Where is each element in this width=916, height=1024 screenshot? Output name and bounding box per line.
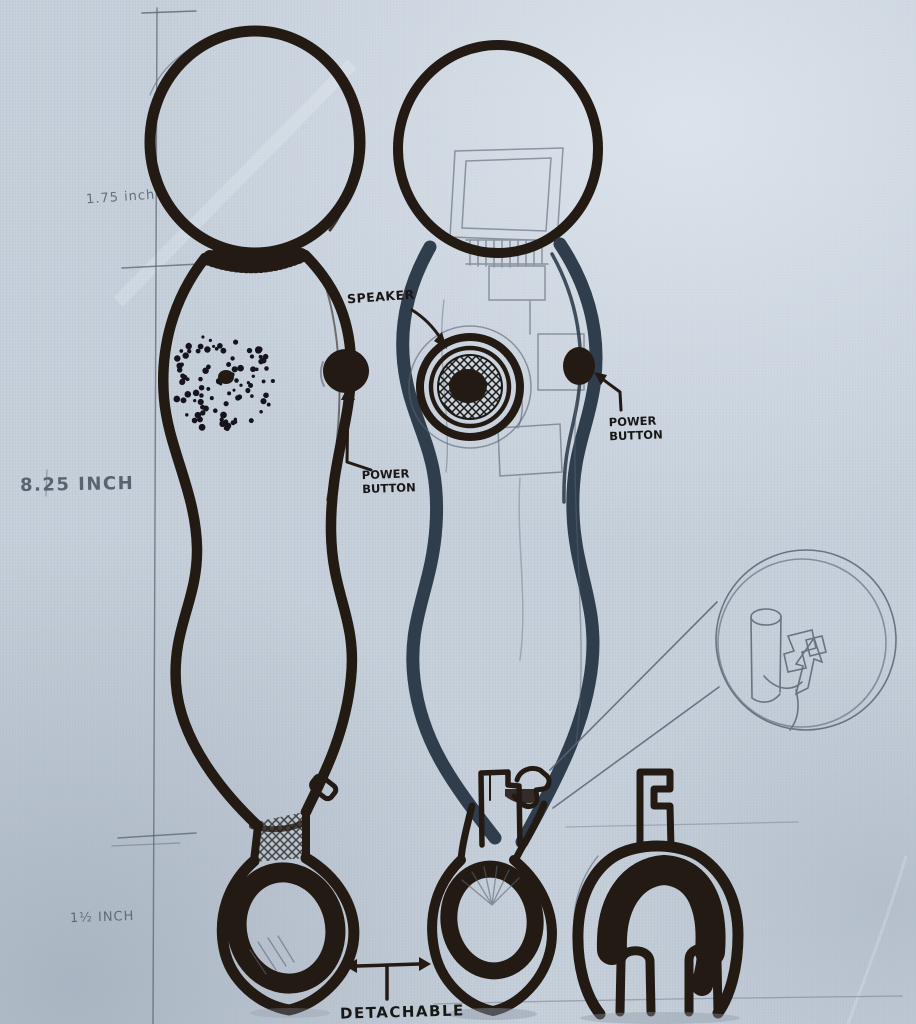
detail-arrow-icon — [796, 638, 822, 694]
side-power-button — [563, 347, 595, 385]
detachable-arrow-icon — [345, 957, 431, 999]
front-view-device — [150, 31, 369, 1010]
side-head-outline — [398, 45, 598, 253]
front-body-left-edge — [163, 258, 258, 826]
detached-clip-post — [640, 772, 671, 848]
side-power-button-label: POWER BUTTON — [609, 413, 682, 444]
clip-detail-sketch — [751, 609, 826, 730]
detail-callout-circle — [550, 550, 896, 808]
detachable-label: DETACHABLE — [340, 1001, 465, 1022]
front-body-right-edge — [305, 255, 352, 812]
front-power-button-label: POWER BUTTON — [362, 466, 427, 497]
sketch-photo: 1.75 inch 8.25 INCH 1½ INCH SPEAKER POWE… — [0, 0, 916, 1024]
sketch-drawing — [0, 0, 916, 1024]
front-head-outline — [150, 31, 360, 253]
front-power-button — [323, 349, 369, 393]
detached-ring-attachment — [574, 772, 740, 1024]
side-speaker — [409, 326, 531, 448]
side-view-device — [398, 45, 598, 1020]
attachment-height-label: 1½ INCH — [70, 909, 135, 926]
body-length-label: 8.25 INCH — [20, 473, 135, 496]
detached-prong-left — [620, 951, 651, 1012]
